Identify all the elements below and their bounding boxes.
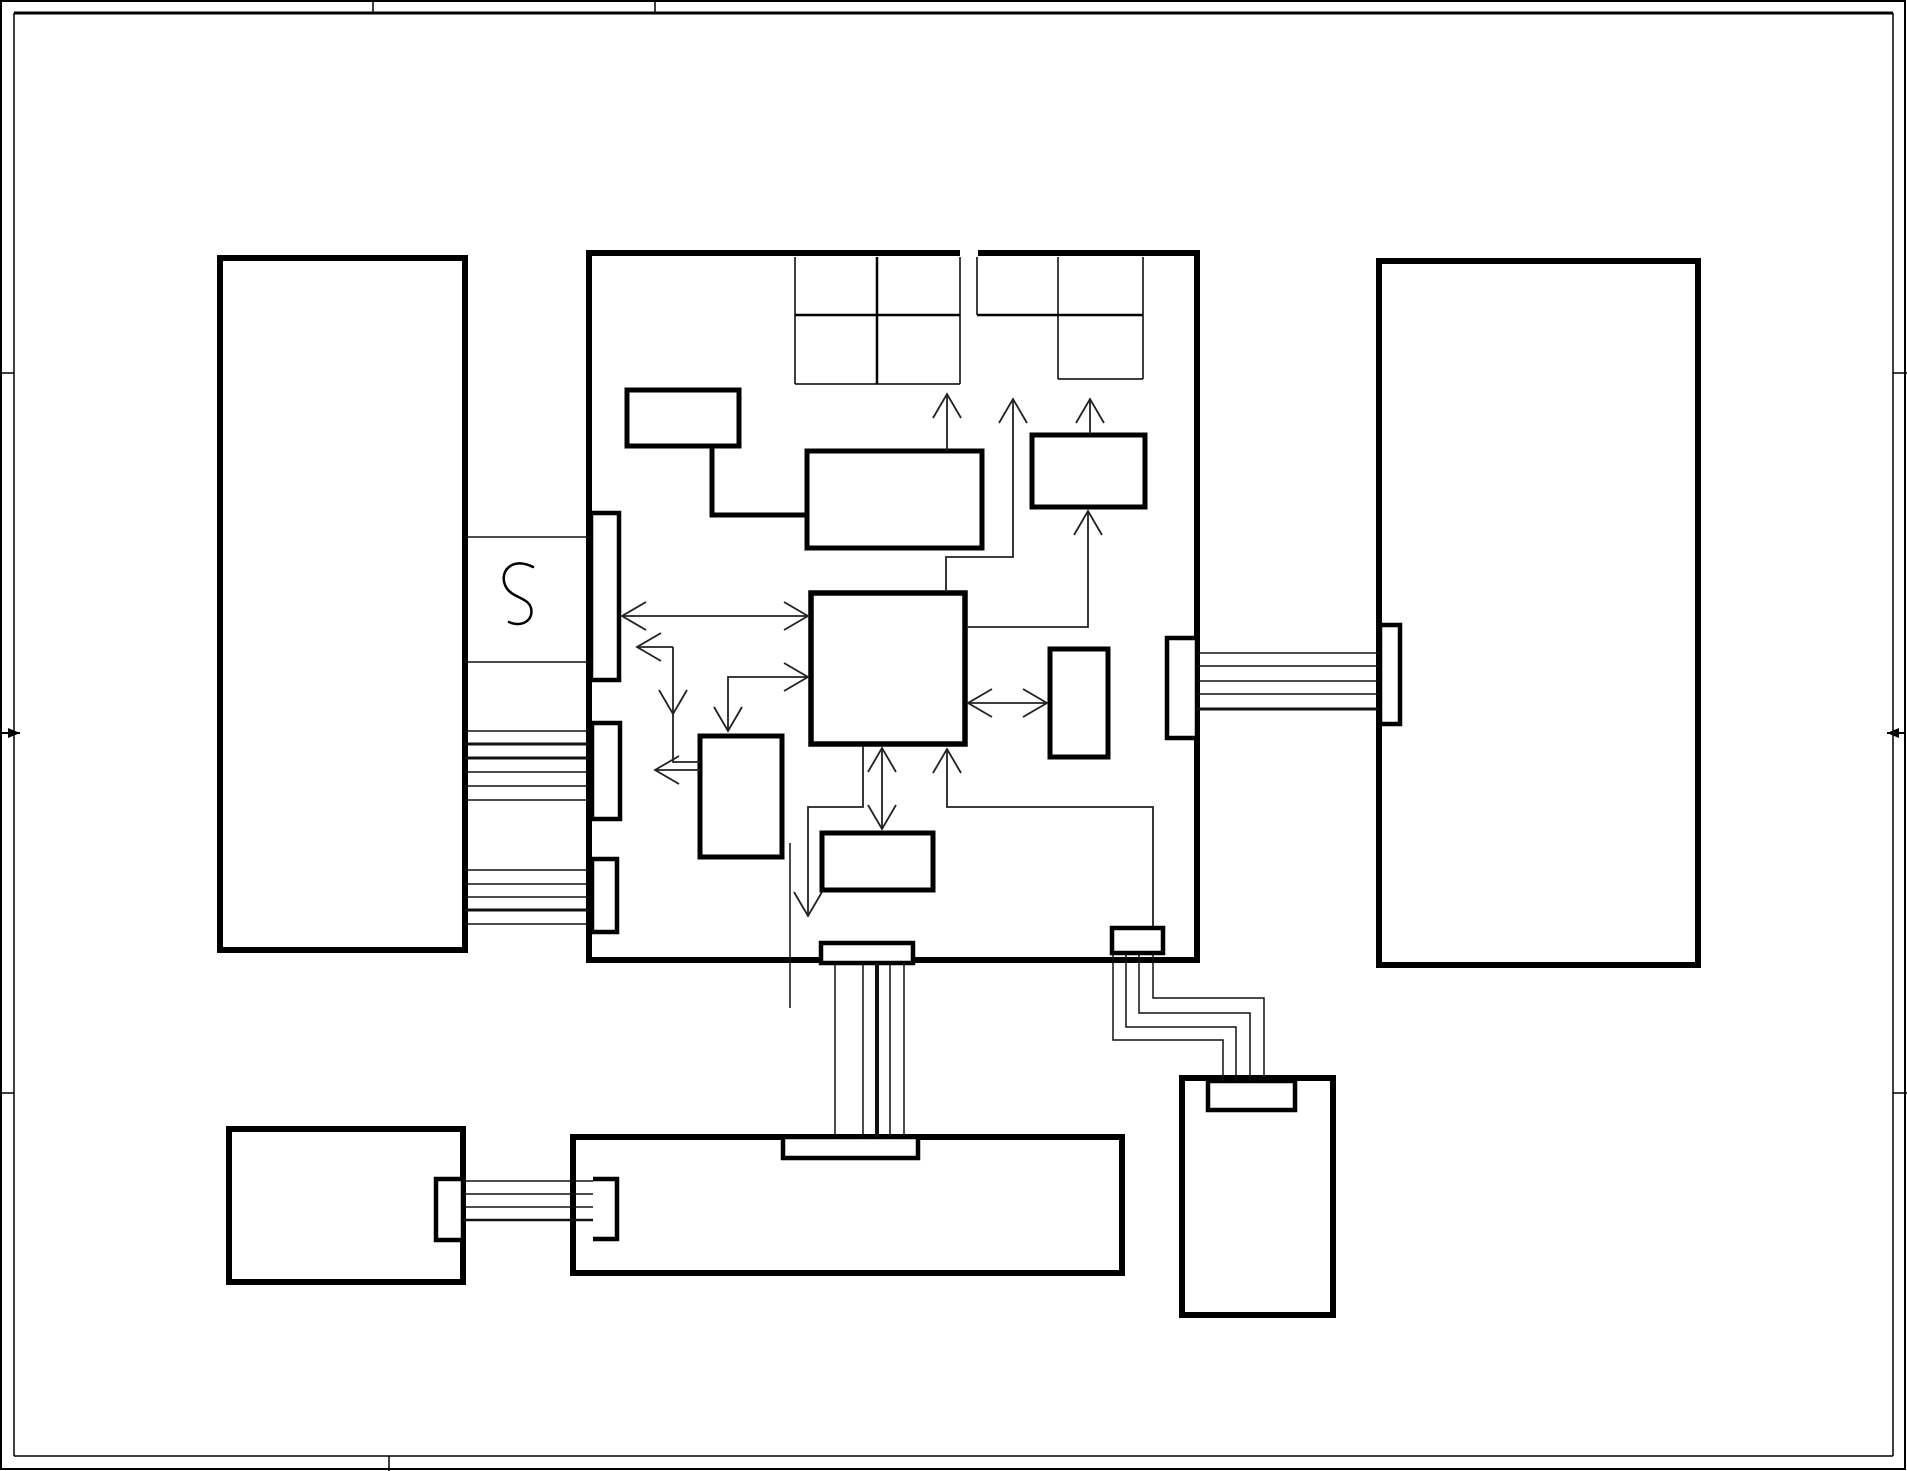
right-block-left-pad bbox=[1380, 625, 1400, 724]
squiggle-symbol bbox=[504, 563, 533, 624]
top-right-small-rect bbox=[1032, 435, 1145, 507]
bottom-right-small-pad bbox=[1112, 928, 1163, 953]
stepped-line-2 bbox=[1126, 955, 1236, 1081]
bottom-left-block-pad bbox=[436, 1179, 463, 1240]
stepped-line-4 bbox=[1153, 955, 1264, 1081]
control-mid-rect bbox=[807, 451, 982, 548]
bottom-right-top-pad bbox=[1208, 1081, 1295, 1110]
left-edge-pad-3 bbox=[592, 859, 617, 932]
below-center-rect bbox=[822, 833, 933, 890]
schematic-canvas bbox=[0, 0, 1907, 1471]
bottom-wide-top-pad bbox=[783, 1137, 918, 1158]
right-small-rect bbox=[1050, 649, 1108, 757]
left-edge-pad-1 bbox=[591, 513, 619, 680]
osc-small-rect bbox=[627, 390, 739, 446]
left-tall-block bbox=[220, 258, 465, 950]
right-edge-pad bbox=[1167, 638, 1197, 738]
schematic-page bbox=[0, 0, 1907, 1471]
bottom-left-block bbox=[229, 1129, 463, 1282]
cpu-core-rect bbox=[811, 593, 965, 744]
left-edge-pad-2 bbox=[592, 723, 620, 819]
bottom-right-block bbox=[1182, 1078, 1333, 1315]
below-left-rect bbox=[700, 736, 782, 857]
right-tall-block bbox=[1379, 261, 1698, 965]
bottom-edge-pad bbox=[821, 943, 913, 963]
stepped-line-3 bbox=[1139, 955, 1250, 1081]
central-top-border-gap bbox=[960, 248, 978, 258]
stepped-line-1 bbox=[1113, 955, 1223, 1081]
